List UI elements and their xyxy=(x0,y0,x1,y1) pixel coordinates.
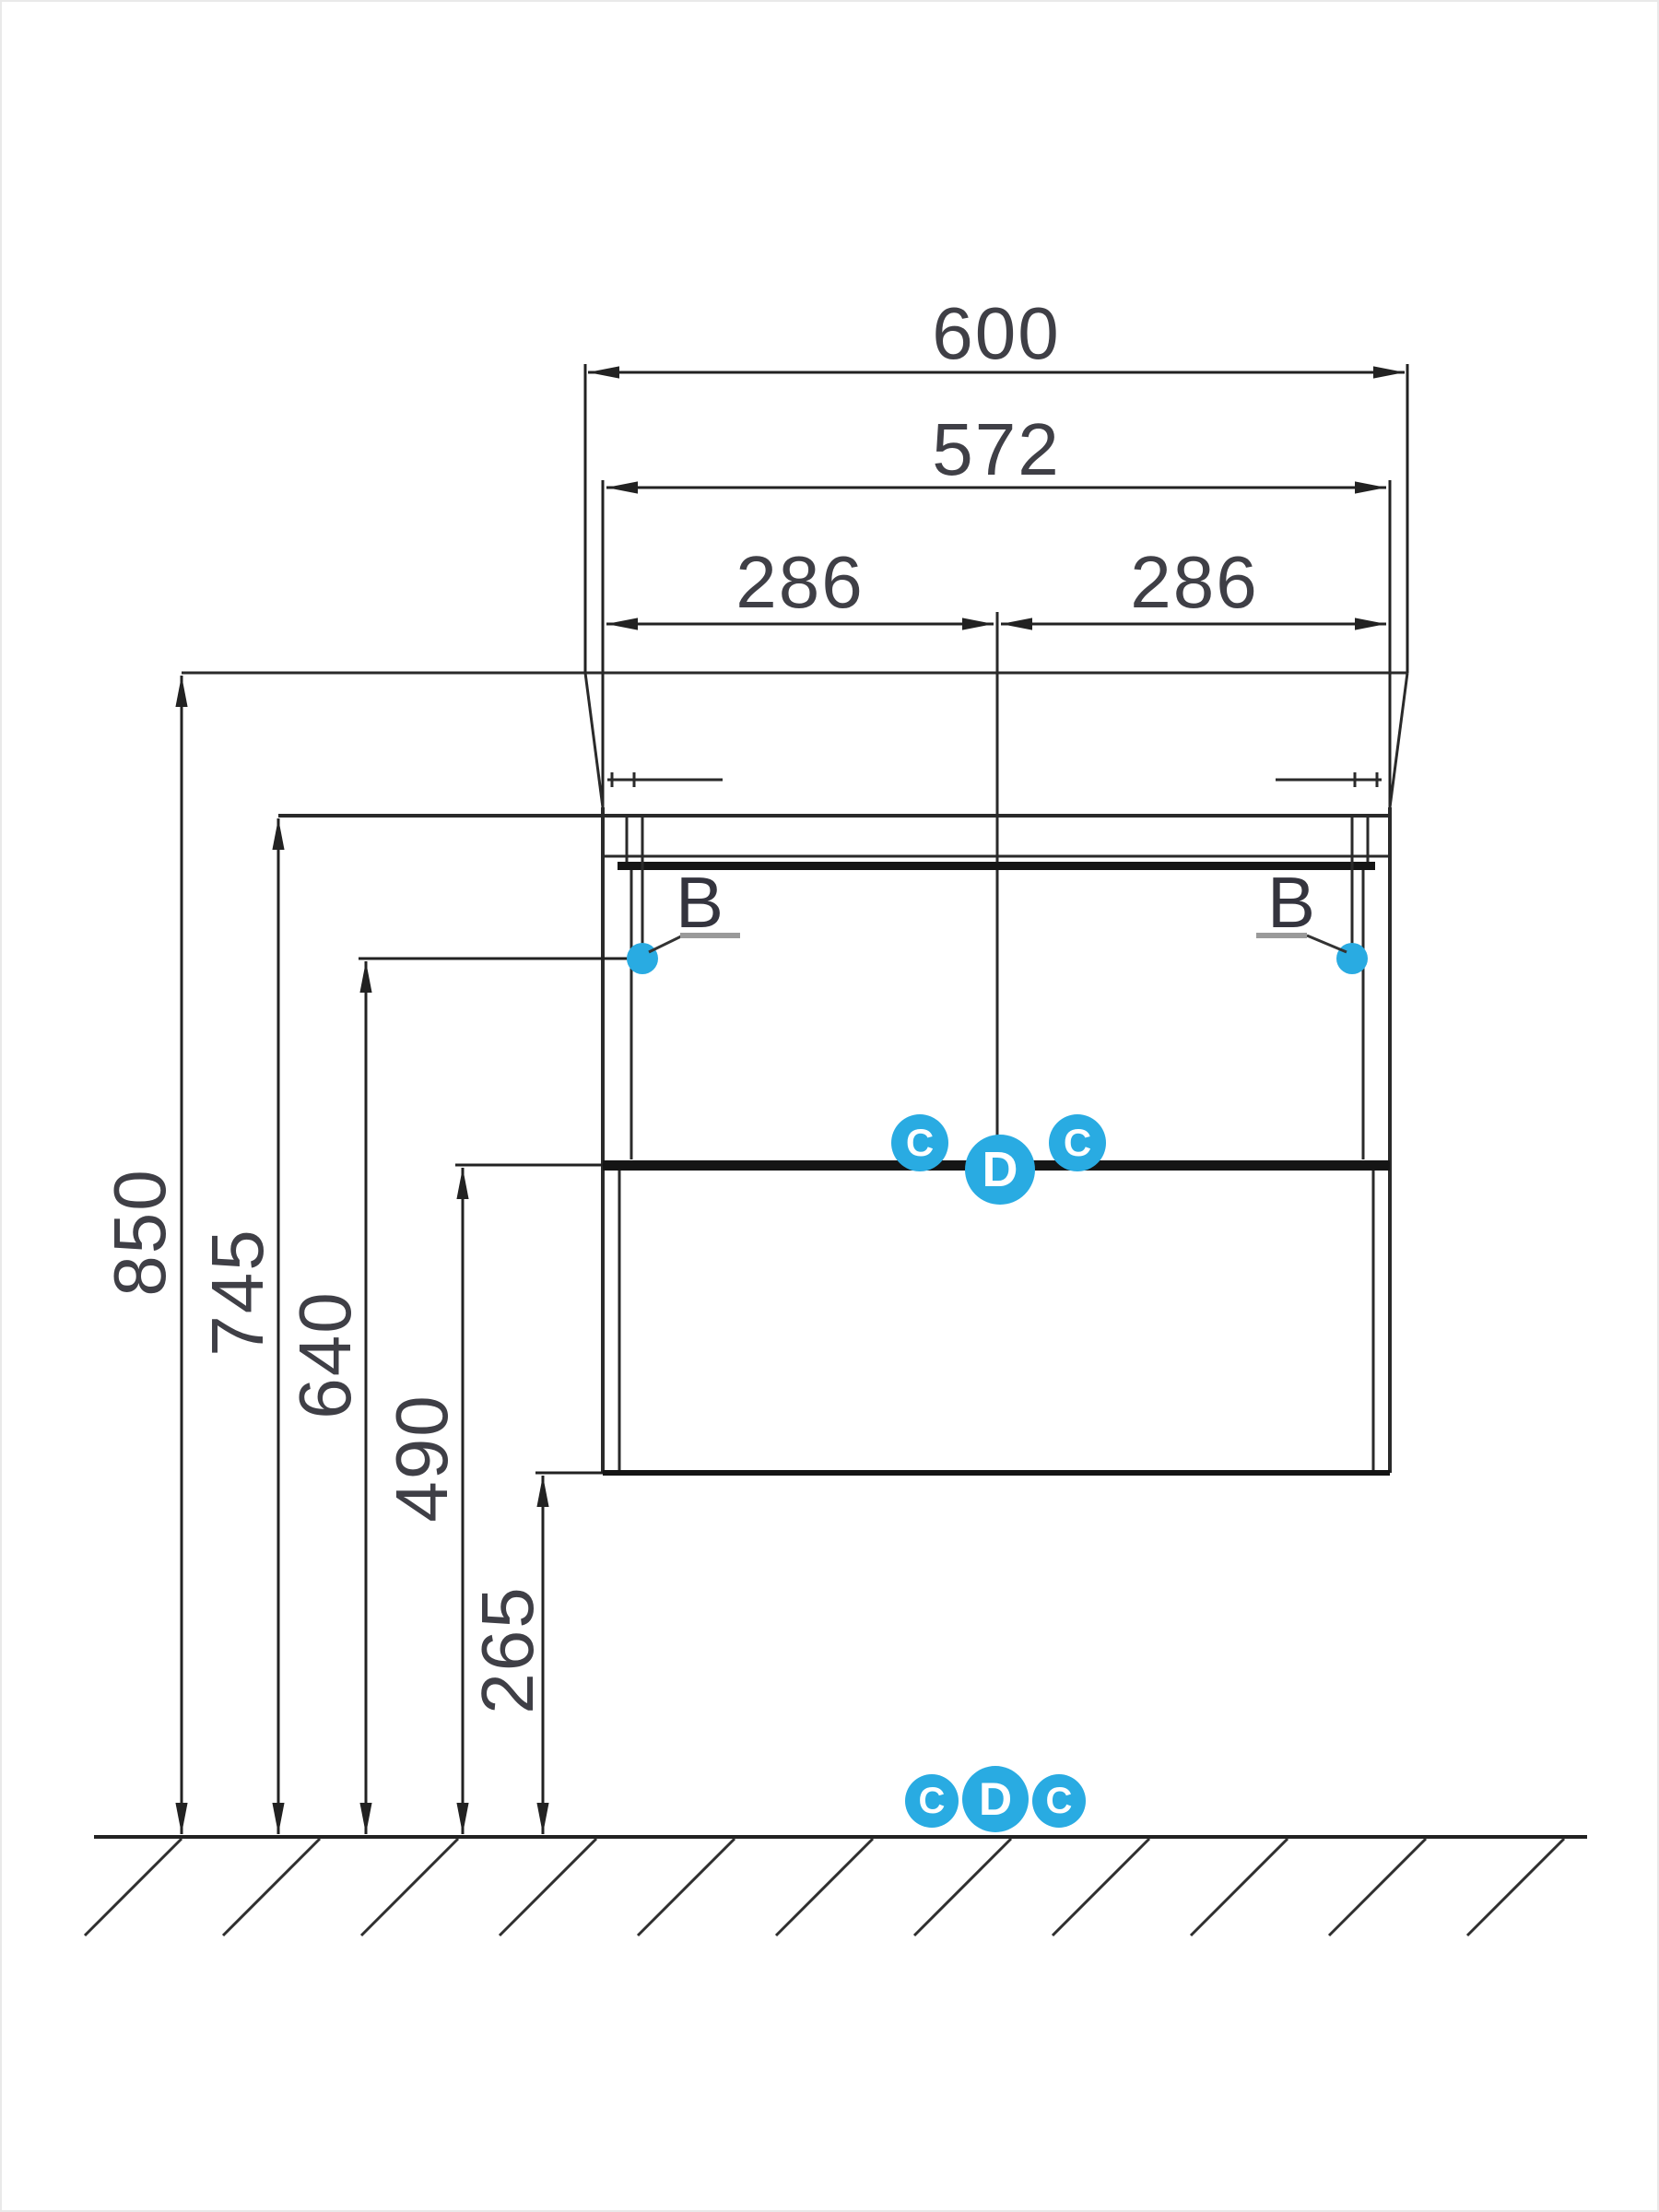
divider-marker-c-right: C xyxy=(1049,1114,1106,1171)
floor-marker-c-left: C xyxy=(905,1774,959,1828)
dim-label-countertop-height: 745 xyxy=(201,1228,275,1356)
cabinet-bottom-edge xyxy=(603,1470,1390,1476)
dim-label-center-right: 286 xyxy=(1130,546,1258,619)
floor-hatch xyxy=(85,1839,1564,1935)
divider-marker-d: D xyxy=(965,1135,1035,1205)
dim-label-divider-height: 490 xyxy=(385,1394,459,1522)
dim-label-cabinet-bottom-height: 265 xyxy=(471,1585,545,1713)
bracket-label-right: B xyxy=(1267,866,1315,938)
dim-line-divider-height xyxy=(455,1165,603,1834)
divider-marker-c-left: C xyxy=(891,1114,948,1171)
dim-label-overall-width: 600 xyxy=(932,297,1060,371)
floor-marker-d: D xyxy=(962,1766,1029,1832)
cabinet-outline xyxy=(278,807,1390,1476)
dim-label-basin-top-height: 850 xyxy=(103,1168,177,1296)
floor-marker-c-right: C xyxy=(1032,1774,1086,1828)
cabinet-top-front-edge xyxy=(618,862,1375,870)
washbasin-outline xyxy=(182,673,1407,807)
dim-label-bracket-height: 640 xyxy=(288,1290,362,1418)
technical-drawing-canvas xyxy=(2,2,1659,2212)
technical-drawing-page: 600 572 286 286 850 745 640 490 265 B B … xyxy=(0,0,1659,2212)
bracket-label-left: B xyxy=(676,866,724,938)
dim-label-inner-width: 572 xyxy=(932,413,1060,487)
dim-label-center-left: 286 xyxy=(735,546,864,619)
